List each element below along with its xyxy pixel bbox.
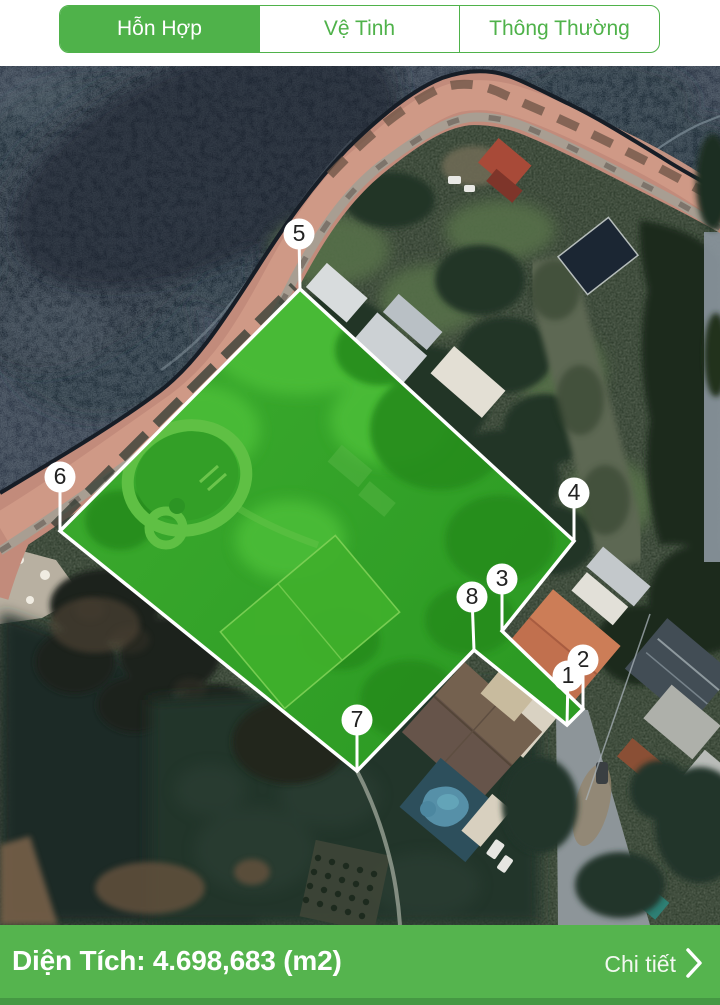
svg-text:8: 8 [466, 583, 479, 609]
svg-text:5: 5 [293, 220, 306, 246]
svg-text:7: 7 [351, 706, 364, 732]
svg-text:4: 4 [568, 479, 581, 505]
svg-text:6: 6 [54, 463, 67, 489]
svg-text:1: 1 [562, 662, 575, 688]
svg-text:3: 3 [496, 565, 509, 591]
